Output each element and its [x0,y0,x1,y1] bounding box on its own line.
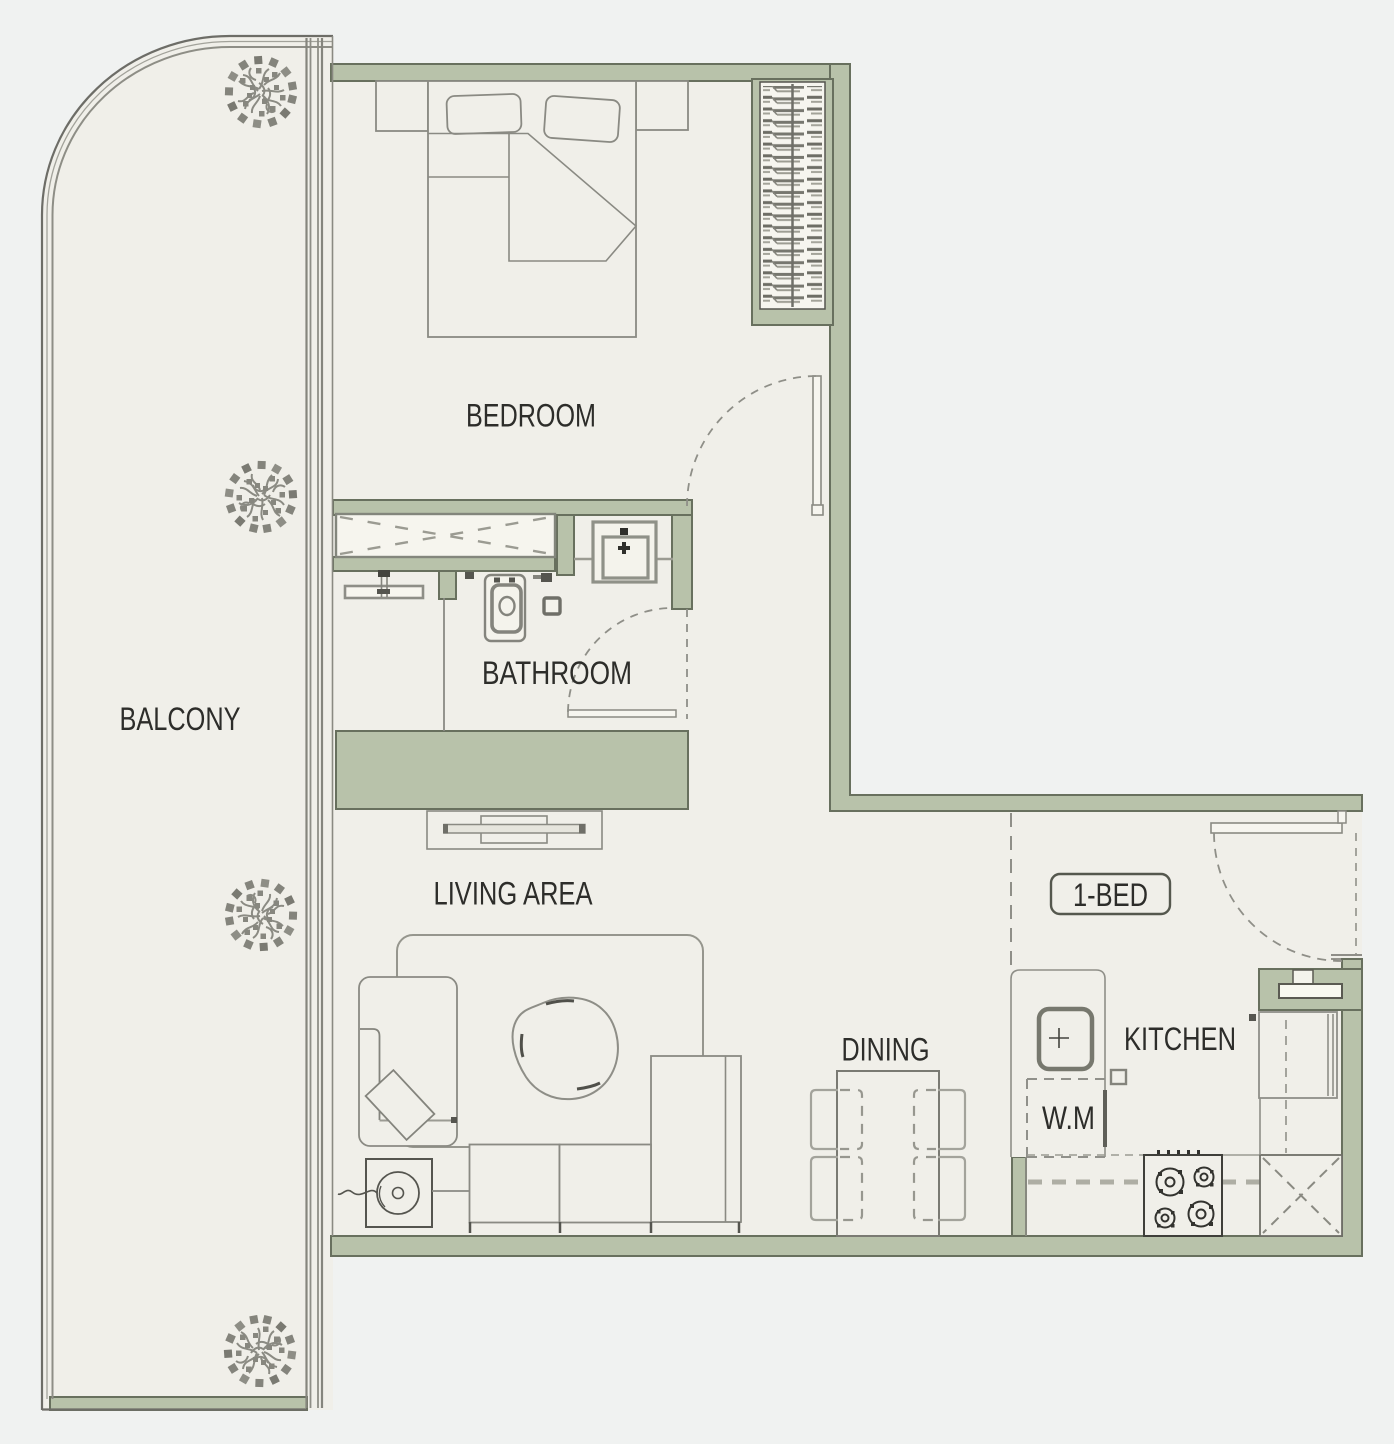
svg-text:W.M: W.M [1042,1100,1095,1136]
svg-text:BALCONY: BALCONY [120,701,241,737]
svg-text:KITCHEN: KITCHEN [1124,1021,1236,1057]
svg-text:BEDROOM: BEDROOM [466,398,596,434]
svg-text:1-BED: 1-BED [1073,877,1148,913]
svg-text:BATHROOM: BATHROOM [482,655,632,691]
svg-text:DINING: DINING [842,1032,930,1068]
svg-text:LIVING AREA: LIVING AREA [434,876,594,912]
